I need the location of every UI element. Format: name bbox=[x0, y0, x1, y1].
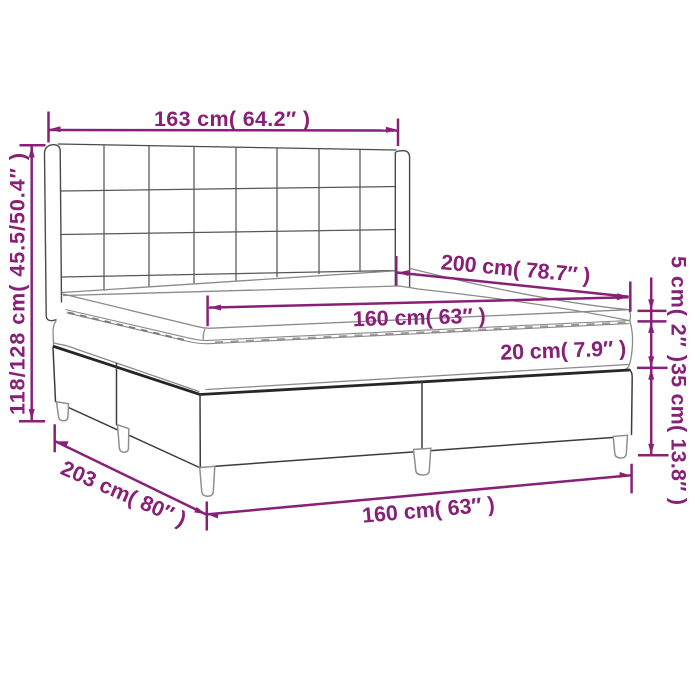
svg-text:35 cm( 13.8″ ): 35 cm( 13.8″ ) bbox=[667, 363, 691, 505]
svg-text:20 cm( 7.9″ ): 20 cm( 7.9″ ) bbox=[500, 336, 627, 364]
svg-text:160 cm( 63″ ): 160 cm( 63″ ) bbox=[353, 304, 487, 331]
svg-text:163 cm( 64.2″ ): 163 cm( 64.2″ ) bbox=[154, 107, 310, 131]
svg-text:118/128 cm( 45.5/50.4″ ): 118/128 cm( 45.5/50.4″ ) bbox=[6, 153, 30, 415]
svg-text:5 cm( 2″ ): 5 cm( 2″ ) bbox=[667, 256, 691, 362]
